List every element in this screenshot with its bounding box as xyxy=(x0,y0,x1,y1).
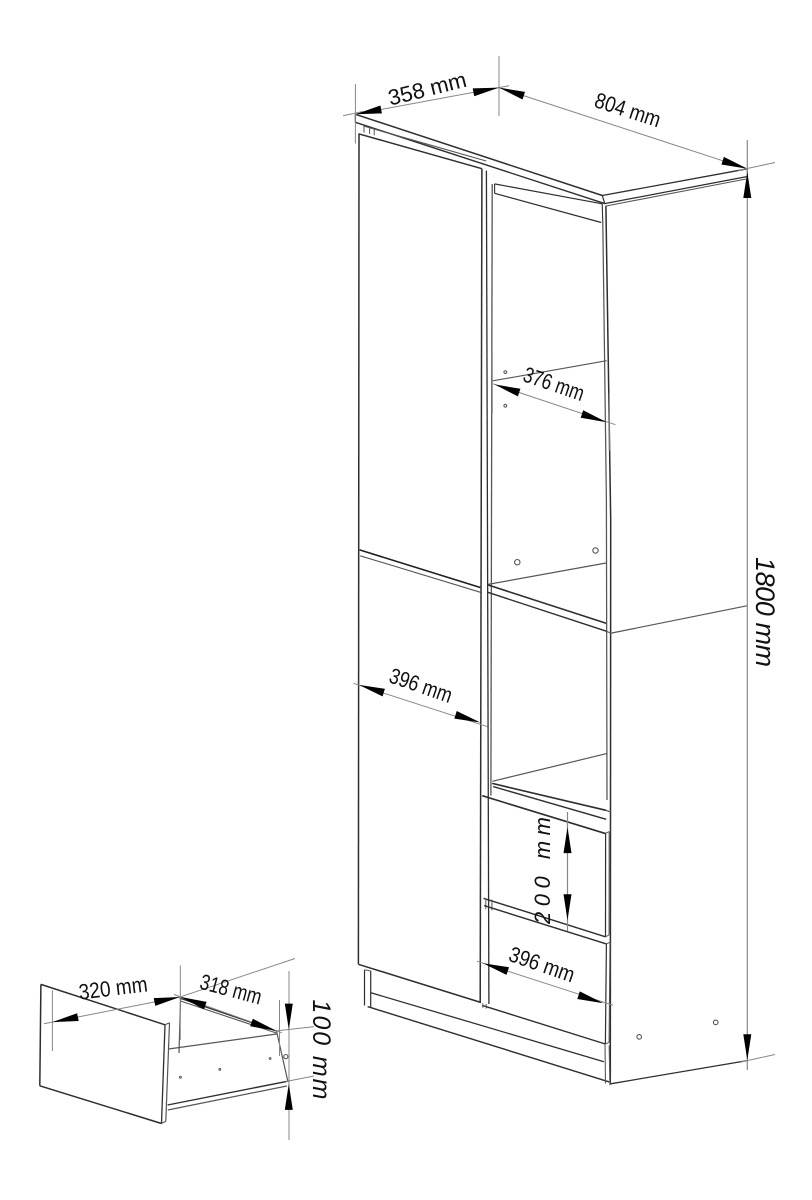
svg-text:100 mm: 100 mm xyxy=(307,1000,335,1100)
svg-text:1800 mm: 1800 mm xyxy=(750,557,780,667)
